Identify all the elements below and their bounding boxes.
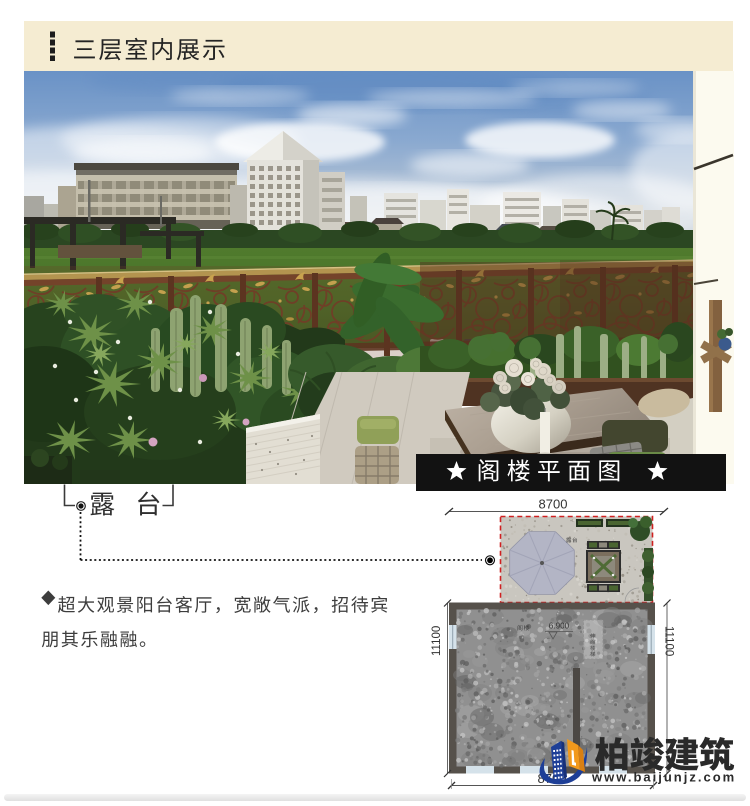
svg-text:6.900: 6.900 bbox=[549, 622, 570, 631]
svg-text:11100: 11100 bbox=[431, 626, 443, 656]
svg-text:www.baijunjz.com: www.baijunjz.com bbox=[591, 770, 736, 785]
svg-text:11100: 11100 bbox=[663, 626, 675, 656]
svg-text:8700: 8700 bbox=[539, 497, 568, 512]
